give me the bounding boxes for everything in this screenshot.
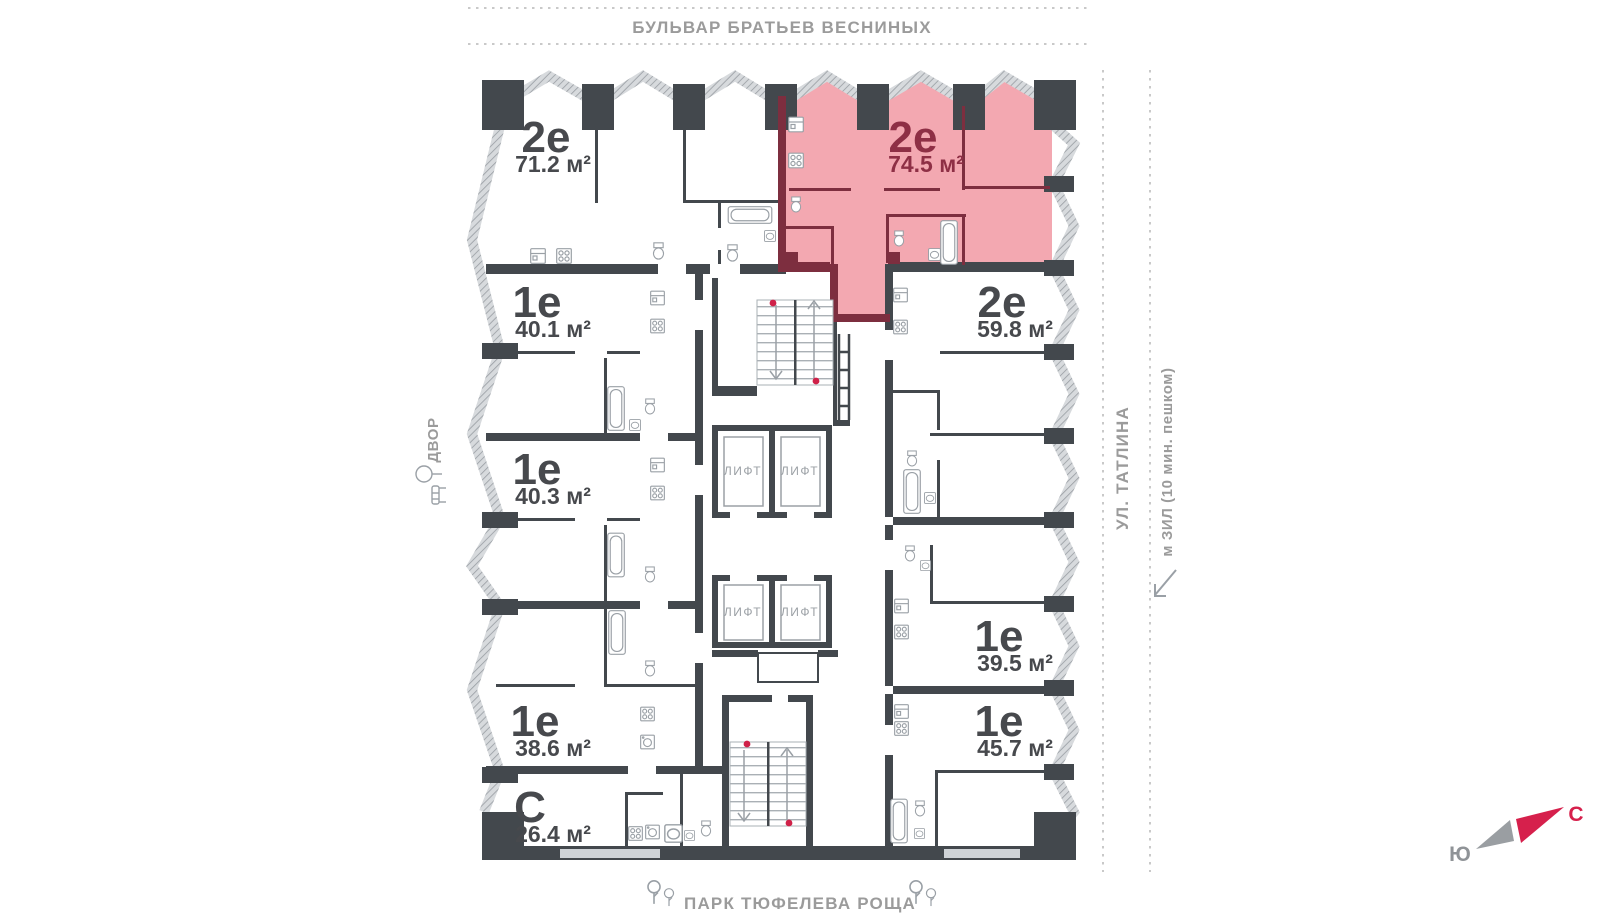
apartment-74-5-hall-fill[interactable]: [830, 268, 890, 320]
stair-marker-dot: [744, 741, 751, 748]
apartment-39-5-hotspot[interactable]: [893, 525, 1050, 686]
window-bay-right: [1054, 126, 1074, 832]
apartment-area: 74.5 м²: [888, 151, 964, 177]
compass-north-label: С: [1568, 803, 1583, 826]
fire-ladder: [839, 334, 849, 420]
apartment-59-8-hotspot[interactable]: [893, 272, 1050, 517]
elevator-vestibule: [758, 653, 818, 682]
window-bay-left: [472, 126, 500, 812]
floor-plan: БУЛЬВАР БРАТЬЕВ ВЕСНИНЫХ УЛ. ТАТЛИНА м З…: [0, 0, 1600, 920]
elevator-label: ЛИФТ: [781, 605, 819, 619]
compass-south-label: Ю: [1449, 843, 1471, 866]
compass-north-needle: [1516, 807, 1564, 843]
toilet-icon: [791, 197, 800, 212]
stair-marker-dot: [770, 300, 777, 307]
apartment-38-6-hotspot[interactable]: [496, 609, 695, 766]
metro-label-right: м ЗИЛ (10 мин. пешком): [1159, 367, 1176, 556]
sink-icon: [929, 249, 941, 261]
stairwell-lower: [730, 741, 806, 827]
apartment-studio-26-4-hotspot[interactable]: [496, 774, 683, 846]
stair-marker-dot: [813, 378, 820, 385]
stair-marker-dot: [786, 820, 793, 827]
apartment-40-3-hotspot[interactable]: [496, 441, 695, 601]
elevator-label: ЛИФТ: [724, 605, 762, 619]
compass-south-needle: [1476, 820, 1514, 849]
courtyard-label-left: ДВОР: [425, 417, 442, 462]
toilet-icon: [701, 821, 710, 836]
park-label-bottom: ПАРК ТЮФЕЛЕВА РОЩА: [684, 894, 916, 913]
apartment-45-7-hotspot[interactable]: [893, 694, 1050, 848]
metro-arrow-icon: [1155, 570, 1176, 596]
sink-icon: [684, 830, 694, 840]
toilet-icon: [894, 231, 903, 246]
fridge-icon: [789, 117, 804, 132]
courtyard-bench-tree-icon: [416, 466, 446, 504]
apartment-71-2-hotspot[interactable]: [496, 96, 778, 264]
elevator-label: ЛИФТ: [724, 464, 762, 478]
compass: Ю С: [1449, 803, 1583, 866]
park-trees-left-icon: [648, 881, 674, 906]
apartment-40-1-hotspot[interactable]: [496, 278, 695, 433]
stove-icon: [789, 153, 804, 168]
street-label-right: УЛ. ТАТЛИНА: [1113, 406, 1132, 530]
elevator-label: ЛИФТ: [781, 464, 819, 478]
street-label-top: БУЛЬВАР БРАТЬЕВ ВЕСНИНЫХ: [632, 18, 932, 37]
bathtub-icon: [941, 221, 958, 265]
